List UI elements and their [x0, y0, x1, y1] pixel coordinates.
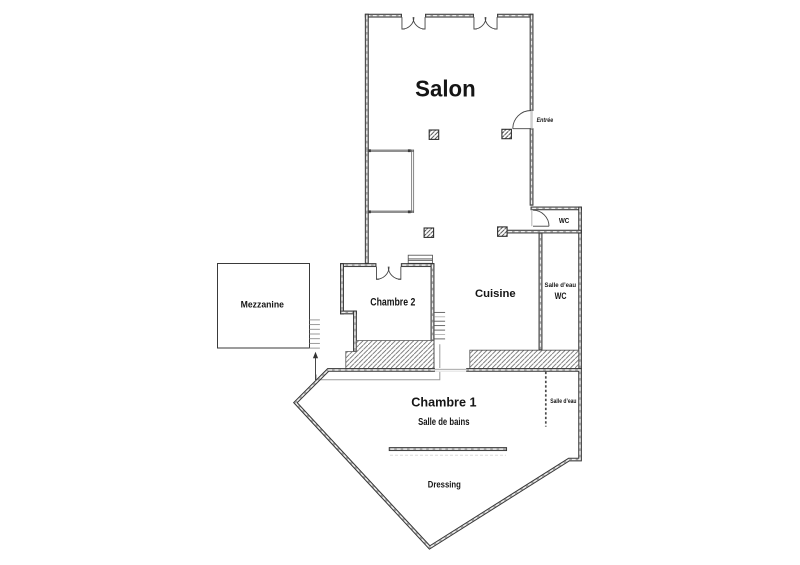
svg-text:Dressing: Dressing — [428, 479, 461, 489]
svg-text:Salle de bains: Salle de bains — [418, 417, 470, 428]
svg-text:Salle d’eau: Salle d’eau — [550, 398, 576, 405]
svg-text:Chambre 1: Chambre 1 — [411, 395, 476, 409]
svg-text:Chambre 2: Chambre 2 — [370, 296, 415, 308]
svg-text:Salle d’eau: Salle d’eau — [545, 282, 577, 289]
svg-text:Cuisine: Cuisine — [475, 288, 516, 300]
svg-text:WC: WC — [555, 291, 567, 301]
svg-text:WC: WC — [559, 216, 570, 225]
svg-text:Mezzanine: Mezzanine — [241, 299, 284, 309]
svg-text:Entrée: Entrée — [537, 117, 554, 124]
svg-text:Salon: Salon — [415, 76, 476, 102]
